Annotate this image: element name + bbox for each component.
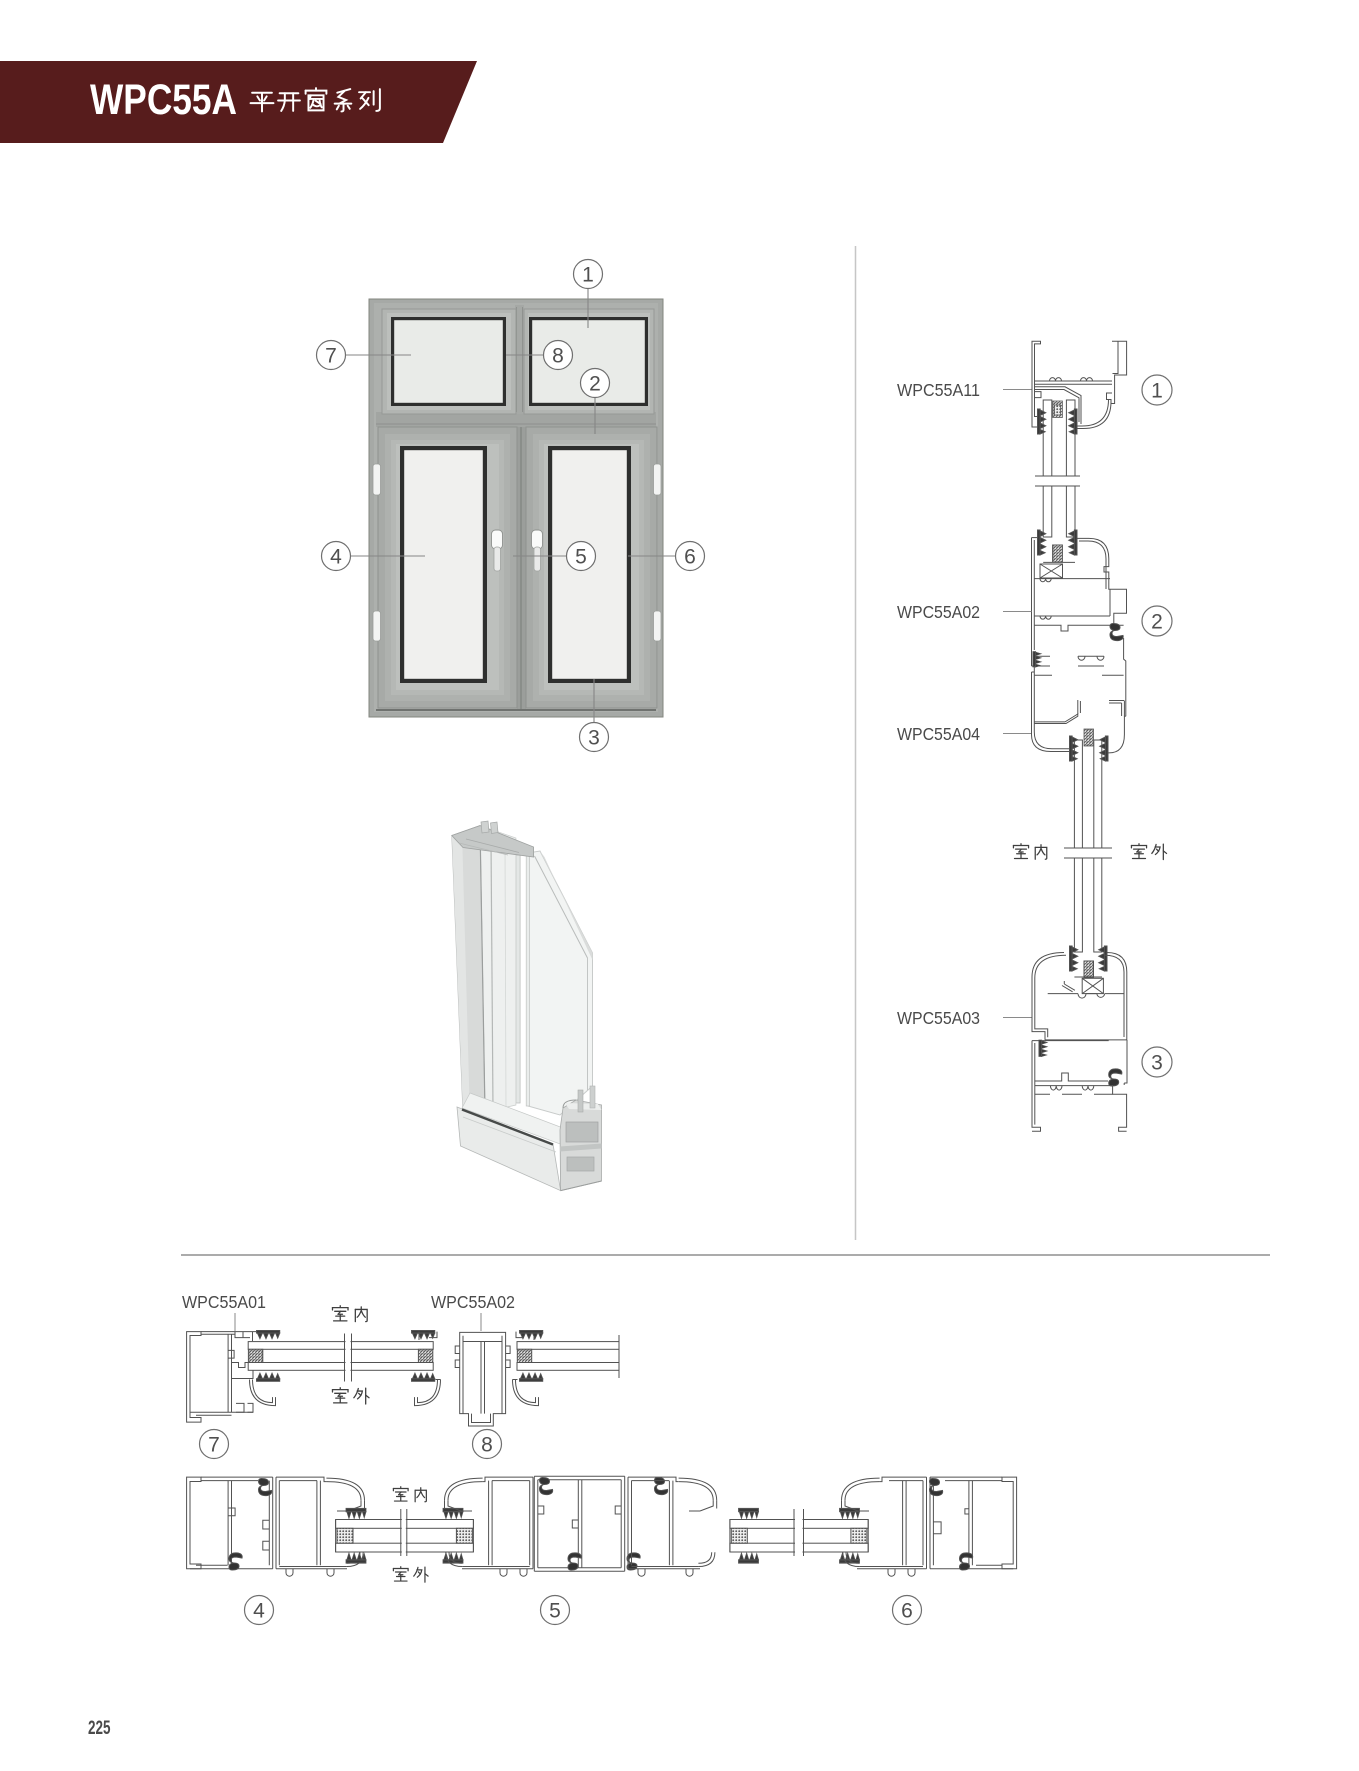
svg-text:WPC55A02: WPC55A02 [897, 602, 980, 622]
svg-text:WPC55A04: WPC55A04 [897, 724, 980, 744]
svg-text:6: 6 [684, 546, 696, 569]
svg-text:4: 4 [330, 546, 342, 569]
svg-text:WPC55A01: WPC55A01 [182, 1292, 266, 1312]
svg-text:1: 1 [1151, 380, 1163, 403]
svg-text:1: 1 [582, 264, 594, 287]
svg-text:4: 4 [253, 1600, 265, 1623]
svg-text:2: 2 [589, 373, 601, 396]
svg-text:8: 8 [481, 1434, 493, 1457]
svg-text:WPC55A03: WPC55A03 [897, 1008, 980, 1028]
svg-text:225: 225 [88, 1718, 111, 1739]
svg-text:5: 5 [549, 1600, 561, 1623]
svg-text:WPC55A02: WPC55A02 [431, 1292, 515, 1312]
svg-text:8: 8 [552, 345, 564, 368]
svg-text:7: 7 [208, 1434, 220, 1457]
svg-text:3: 3 [1151, 1052, 1163, 1075]
svg-text:2: 2 [1151, 611, 1163, 634]
svg-text:WPC55A: WPC55A [90, 76, 237, 124]
svg-text:6: 6 [901, 1600, 913, 1623]
svg-text:WPC55A11: WPC55A11 [897, 380, 980, 400]
svg-text:3: 3 [588, 727, 600, 750]
svg-text:5: 5 [575, 546, 587, 569]
svg-text:7: 7 [325, 345, 337, 368]
